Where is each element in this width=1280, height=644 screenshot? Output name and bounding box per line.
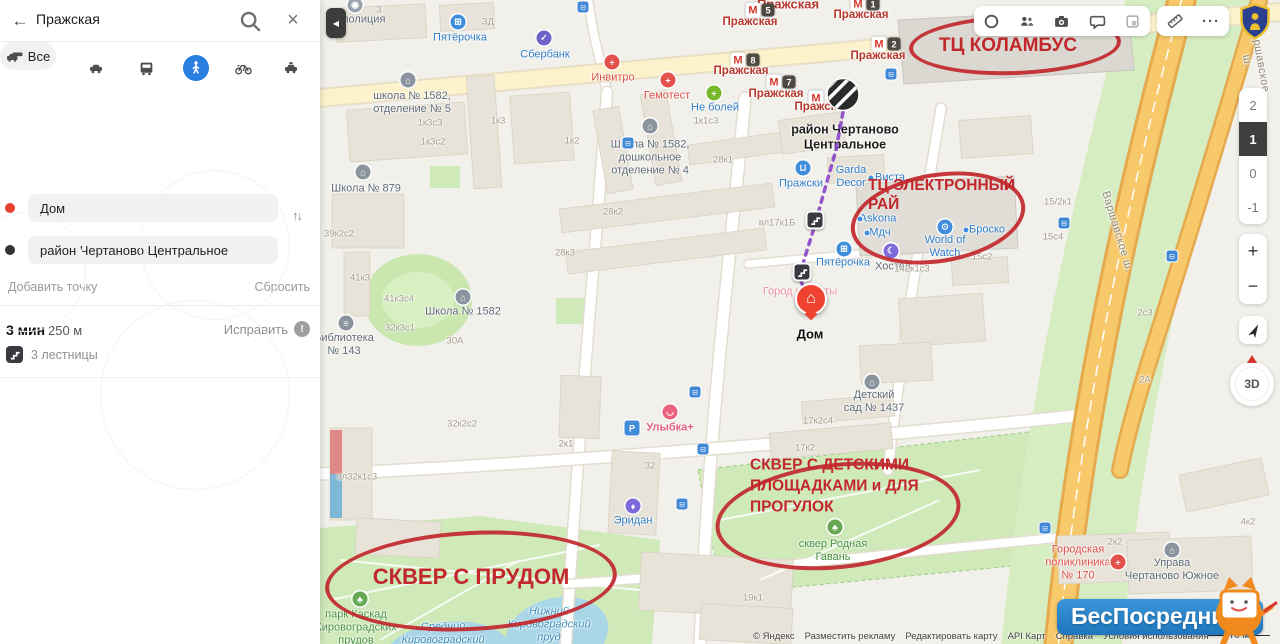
- building-number: 3: [376, 4, 381, 15]
- attribution-link[interactable]: Редактировать карту: [905, 631, 997, 642]
- taxi-icon: [282, 60, 300, 76]
- car-icon: [87, 60, 105, 76]
- sberbank-icon[interactable]: ✓: [537, 31, 552, 46]
- eridan-icon[interactable]: ♦: [626, 499, 641, 514]
- compass-3d-label: 3D: [1235, 367, 1269, 401]
- poliklinika-170-cross-icon[interactable]: +: [1111, 555, 1126, 570]
- building-number: 32: [645, 460, 656, 471]
- ne-boley-icon[interactable]: +: [707, 86, 722, 101]
- school-1582-preschool-icon[interactable]: ⌂: [643, 119, 658, 134]
- bus-stop-icon[interactable]: ⊟: [1059, 218, 1070, 229]
- info-badge-icon: !: [294, 321, 310, 337]
- scale-line: [1208, 635, 1224, 636]
- building-number: 41к3с4: [384, 293, 414, 304]
- attribution-link[interactable]: © Яндекс: [753, 631, 795, 642]
- metro-station-label[interactable]: Пражская: [749, 88, 804, 102]
- bus-stop-icon[interactable]: ⊟: [1167, 251, 1178, 262]
- building-number: 15/2к1: [1044, 196, 1072, 207]
- ruler-icon[interactable]: [1162, 8, 1188, 34]
- building-number: 1к3с2: [421, 136, 446, 147]
- building-number: 2с3: [1137, 307, 1152, 318]
- water-label: Средний Кировоградский: [401, 621, 484, 644]
- floor-button-0[interactable]: 0: [1239, 156, 1267, 190]
- building-number: 28к2: [603, 206, 623, 217]
- building-number: 28к3: [555, 247, 575, 258]
- askona-label[interactable]: Askona: [860, 213, 897, 226]
- pyaterochka-1-icon[interactable]: ⊞: [451, 15, 466, 30]
- pyaterochka-2-label[interactable]: Пятёрочка: [816, 257, 870, 270]
- mode-all-label: Все: [28, 49, 50, 64]
- gemotest-icon[interactable]: +: [661, 73, 676, 88]
- home-label-label: Дом: [797, 326, 824, 341]
- school-879-icon[interactable]: ⌂: [356, 165, 371, 180]
- gemotest-label[interactable]: Гемотест: [644, 90, 690, 103]
- parking-icon[interactable]: P: [625, 421, 640, 436]
- building-number: 30А: [447, 335, 464, 346]
- zoom-in-button[interactable]: +: [1239, 234, 1267, 269]
- route-start-dot: [5, 203, 15, 213]
- school-1582-label[interactable]: Школа № 1582: [425, 306, 501, 319]
- attribution-link[interactable]: Разместить рекламу: [805, 631, 896, 642]
- panorama-camera-icon[interactable]: [1049, 8, 1075, 34]
- pedestrian-icon: [183, 55, 209, 81]
- mode-taxi-button[interactable]: [275, 52, 307, 84]
- besposrednika-banner[interactable]: БесПосредника .ru: [1057, 599, 1263, 635]
- north-indicator-icon: [1247, 355, 1257, 363]
- metro-station-label[interactable]: Пражская: [795, 101, 850, 115]
- search-input[interactable]: Пражская: [36, 11, 236, 27]
- search-row: ← Пражская ×: [0, 0, 320, 42]
- building-number: 32к2с2: [447, 418, 477, 429]
- building-number: 1к1с3: [694, 115, 719, 126]
- scale-line: [1254, 635, 1270, 636]
- bus-stop-icon[interactable]: ⊟: [690, 387, 701, 398]
- building-number: вл32к1с3: [337, 471, 377, 482]
- vista-label[interactable]: Виста: [875, 172, 905, 185]
- school-1582-dep5-icon[interactable]: ⌂: [401, 73, 416, 88]
- water-label: Нижний Кировоградский пруд: [507, 606, 590, 644]
- watermark-circle: [140, 170, 290, 320]
- yandex-maps-app: ⊞Пятёрочка◉полиция✓Сбербанк+Инвитро+Гемо…: [0, 0, 1280, 644]
- building-number: ЗД: [482, 16, 494, 27]
- library-143-icon[interactable]: ≡: [339, 316, 354, 331]
- swap-points-icon[interactable]: ↑↓: [292, 208, 301, 223]
- traffic-ring-icon[interactable]: [979, 8, 1005, 34]
- uprava-chertanovo-icon[interactable]: ⌂: [1165, 543, 1180, 558]
- invitro-label[interactable]: Инвитро: [591, 72, 634, 85]
- stairs-icon: [6, 346, 23, 363]
- library-143-label[interactable]: Библиотека № 143: [314, 332, 374, 358]
- banner-title: БесПосредника: [1071, 603, 1250, 630]
- building-number: 41к3: [350, 272, 370, 283]
- metro-station-label[interactable]: Пражская: [757, 0, 819, 12]
- floors-selector: 210-1: [1239, 88, 1267, 224]
- hostel-icon[interactable]: ☾: [884, 244, 899, 259]
- mode-car-button[interactable]: [80, 52, 112, 84]
- building-number: 17к2: [795, 442, 815, 453]
- garda-decor-label[interactable]: Garda Decor: [836, 164, 867, 190]
- mode-bike-button[interactable]: [227, 52, 259, 84]
- mdch-label[interactable]: Мдч: [869, 227, 890, 240]
- attribution-link[interactable]: API Карт: [1008, 631, 1046, 642]
- pyaterochka-1-label[interactable]: Пятёрочка: [433, 32, 487, 45]
- building-number: вл17к1Б: [759, 217, 796, 228]
- search-icon[interactable]: [238, 9, 262, 33]
- building-number: 2к2: [1108, 536, 1123, 547]
- building-number: 1к3с3: [418, 117, 443, 128]
- back-button[interactable]: ←: [8, 9, 32, 33]
- bike-icon: [234, 60, 253, 76]
- zoom-controls: + −: [1239, 234, 1267, 304]
- banner-suffix: .ru: [1236, 609, 1260, 631]
- park-kaskad-icon[interactable]: ♣: [353, 592, 368, 607]
- sberbank-label[interactable]: Сбербанк: [520, 49, 569, 62]
- watermark-circle: [100, 300, 290, 490]
- building-number: 39к2с2: [324, 228, 354, 239]
- floor-button--1[interactable]: -1: [1239, 190, 1267, 224]
- mode-walk-button-selected[interactable]: [180, 52, 212, 84]
- cars-icon: [6, 49, 24, 63]
- skver-rodnaya-gavan-icon[interactable]: ♣: [828, 520, 843, 535]
- school-879-label[interactable]: Школа № 879: [331, 183, 401, 196]
- shield-logo-icon[interactable]: [1238, 3, 1272, 46]
- eridan-label[interactable]: Эридан: [614, 515, 653, 528]
- floor-button-2[interactable]: 2: [1239, 88, 1267, 122]
- building-number: 4к2: [1241, 516, 1256, 527]
- bus-icon: [138, 60, 155, 77]
- building-number: 15с2: [972, 251, 993, 262]
- pyaterochka-2-icon[interactable]: ⊞: [837, 242, 852, 257]
- building-number: 32к3с1: [385, 322, 415, 333]
- school-1582-dep5-label[interactable]: школа № 1582, отделение № 5: [373, 90, 451, 116]
- building-number: 17к2с4: [803, 415, 833, 426]
- building-number: 15с4: [1043, 231, 1064, 242]
- mirrors-panel-icon[interactable]: [1119, 8, 1145, 34]
- bus-stop-icon[interactable]: ⊟: [623, 138, 634, 149]
- mode-transit-button[interactable]: [130, 52, 162, 84]
- metro-station-label[interactable]: Пражская: [834, 9, 889, 23]
- bus-stop-icon[interactable]: ⊟: [578, 2, 589, 13]
- district-label-label: район Чертаново Центральное: [791, 122, 899, 152]
- world-of-watch-label[interactable]: World of Watch: [925, 234, 966, 260]
- building-number: 1к3: [491, 115, 506, 126]
- navigation-arrow-icon: [1245, 322, 1262, 339]
- school-1582-icon[interactable]: ⌂: [456, 290, 471, 305]
- invitro-icon[interactable]: +: [605, 55, 620, 70]
- gorod-krasoty-label[interactable]: Город красоты: [763, 286, 837, 299]
- transport-modes: Все: [0, 42, 320, 94]
- bus-stop-icon[interactable]: ⊟: [677, 499, 688, 510]
- bus-stop-icon[interactable]: ⊟: [1040, 523, 1051, 534]
- building-number: 19к1: [743, 592, 763, 603]
- building-number: 142к1с3: [894, 263, 929, 274]
- bus-stop-icon[interactable]: ⊟: [698, 444, 709, 455]
- building-number: 2А: [1139, 374, 1151, 385]
- detsky-sad-1437-label[interactable]: Детский сад № 1437: [844, 389, 904, 415]
- building-number: 28к1: [713, 154, 733, 165]
- metro-station-label[interactable]: Пражская: [723, 16, 778, 30]
- tools-toolbar: ···: [1157, 6, 1229, 36]
- skver-rodnaya-gavan-label[interactable]: сквер Родная Гавань: [799, 538, 868, 564]
- compass-3d-button[interactable]: 3D: [1230, 362, 1274, 406]
- uprava-chertanovo-label[interactable]: Управа Чертаново Южное: [1125, 557, 1219, 583]
- stairs-count-label: 3 лестницы: [31, 348, 98, 362]
- chat-icon[interactable]: [1084, 8, 1110, 34]
- metro-station-label[interactable]: Пражская: [851, 50, 906, 64]
- close-icon[interactable]: ×: [281, 8, 305, 32]
- more-options-icon[interactable]: ···: [1198, 8, 1224, 34]
- map-layers-toolbar: [974, 6, 1150, 36]
- collapse-sidebar-button[interactable]: ◀: [326, 8, 346, 38]
- ne-boley-label[interactable]: Не болей: [691, 102, 739, 115]
- floor-button-1[interactable]: 1: [1239, 122, 1267, 156]
- bus-stop-icon[interactable]: ⊟: [886, 69, 897, 80]
- building-number: 2к1: [559, 438, 574, 449]
- park-kaskad-label[interactable]: парк Каскад Кировоградских прудов: [315, 609, 396, 644]
- ulybka-plus-icon[interactable]: ◡: [663, 405, 678, 420]
- mode-all-button[interactable]: Все: [0, 42, 56, 70]
- metro-station-label[interactable]: Пражская: [714, 65, 769, 79]
- brosko-label[interactable]: Броско: [969, 224, 1005, 237]
- stairs-row: 3 лестницы: [6, 346, 98, 363]
- detsky-sad-1437-icon[interactable]: ⌂: [865, 375, 880, 390]
- world-of-watch-icon[interactable]: ⊙: [938, 220, 953, 235]
- poliklinika-170-label[interactable]: Городская поликлиника № 170: [1045, 544, 1110, 583]
- route-sidebar: ← Пражская × Все: [0, 0, 320, 644]
- locate-me-button[interactable]: [1239, 316, 1267, 344]
- prazhsky-mall-icon[interactable]: ⊔: [796, 161, 811, 176]
- friends-icon[interactable]: [1014, 8, 1040, 34]
- prazhsky-mall-label[interactable]: Пражски: [779, 178, 823, 191]
- zoom-out-button[interactable]: −: [1239, 269, 1267, 304]
- ulybka-plus-label[interactable]: Улыбка+: [646, 422, 693, 435]
- building-number: 1к2: [565, 135, 580, 146]
